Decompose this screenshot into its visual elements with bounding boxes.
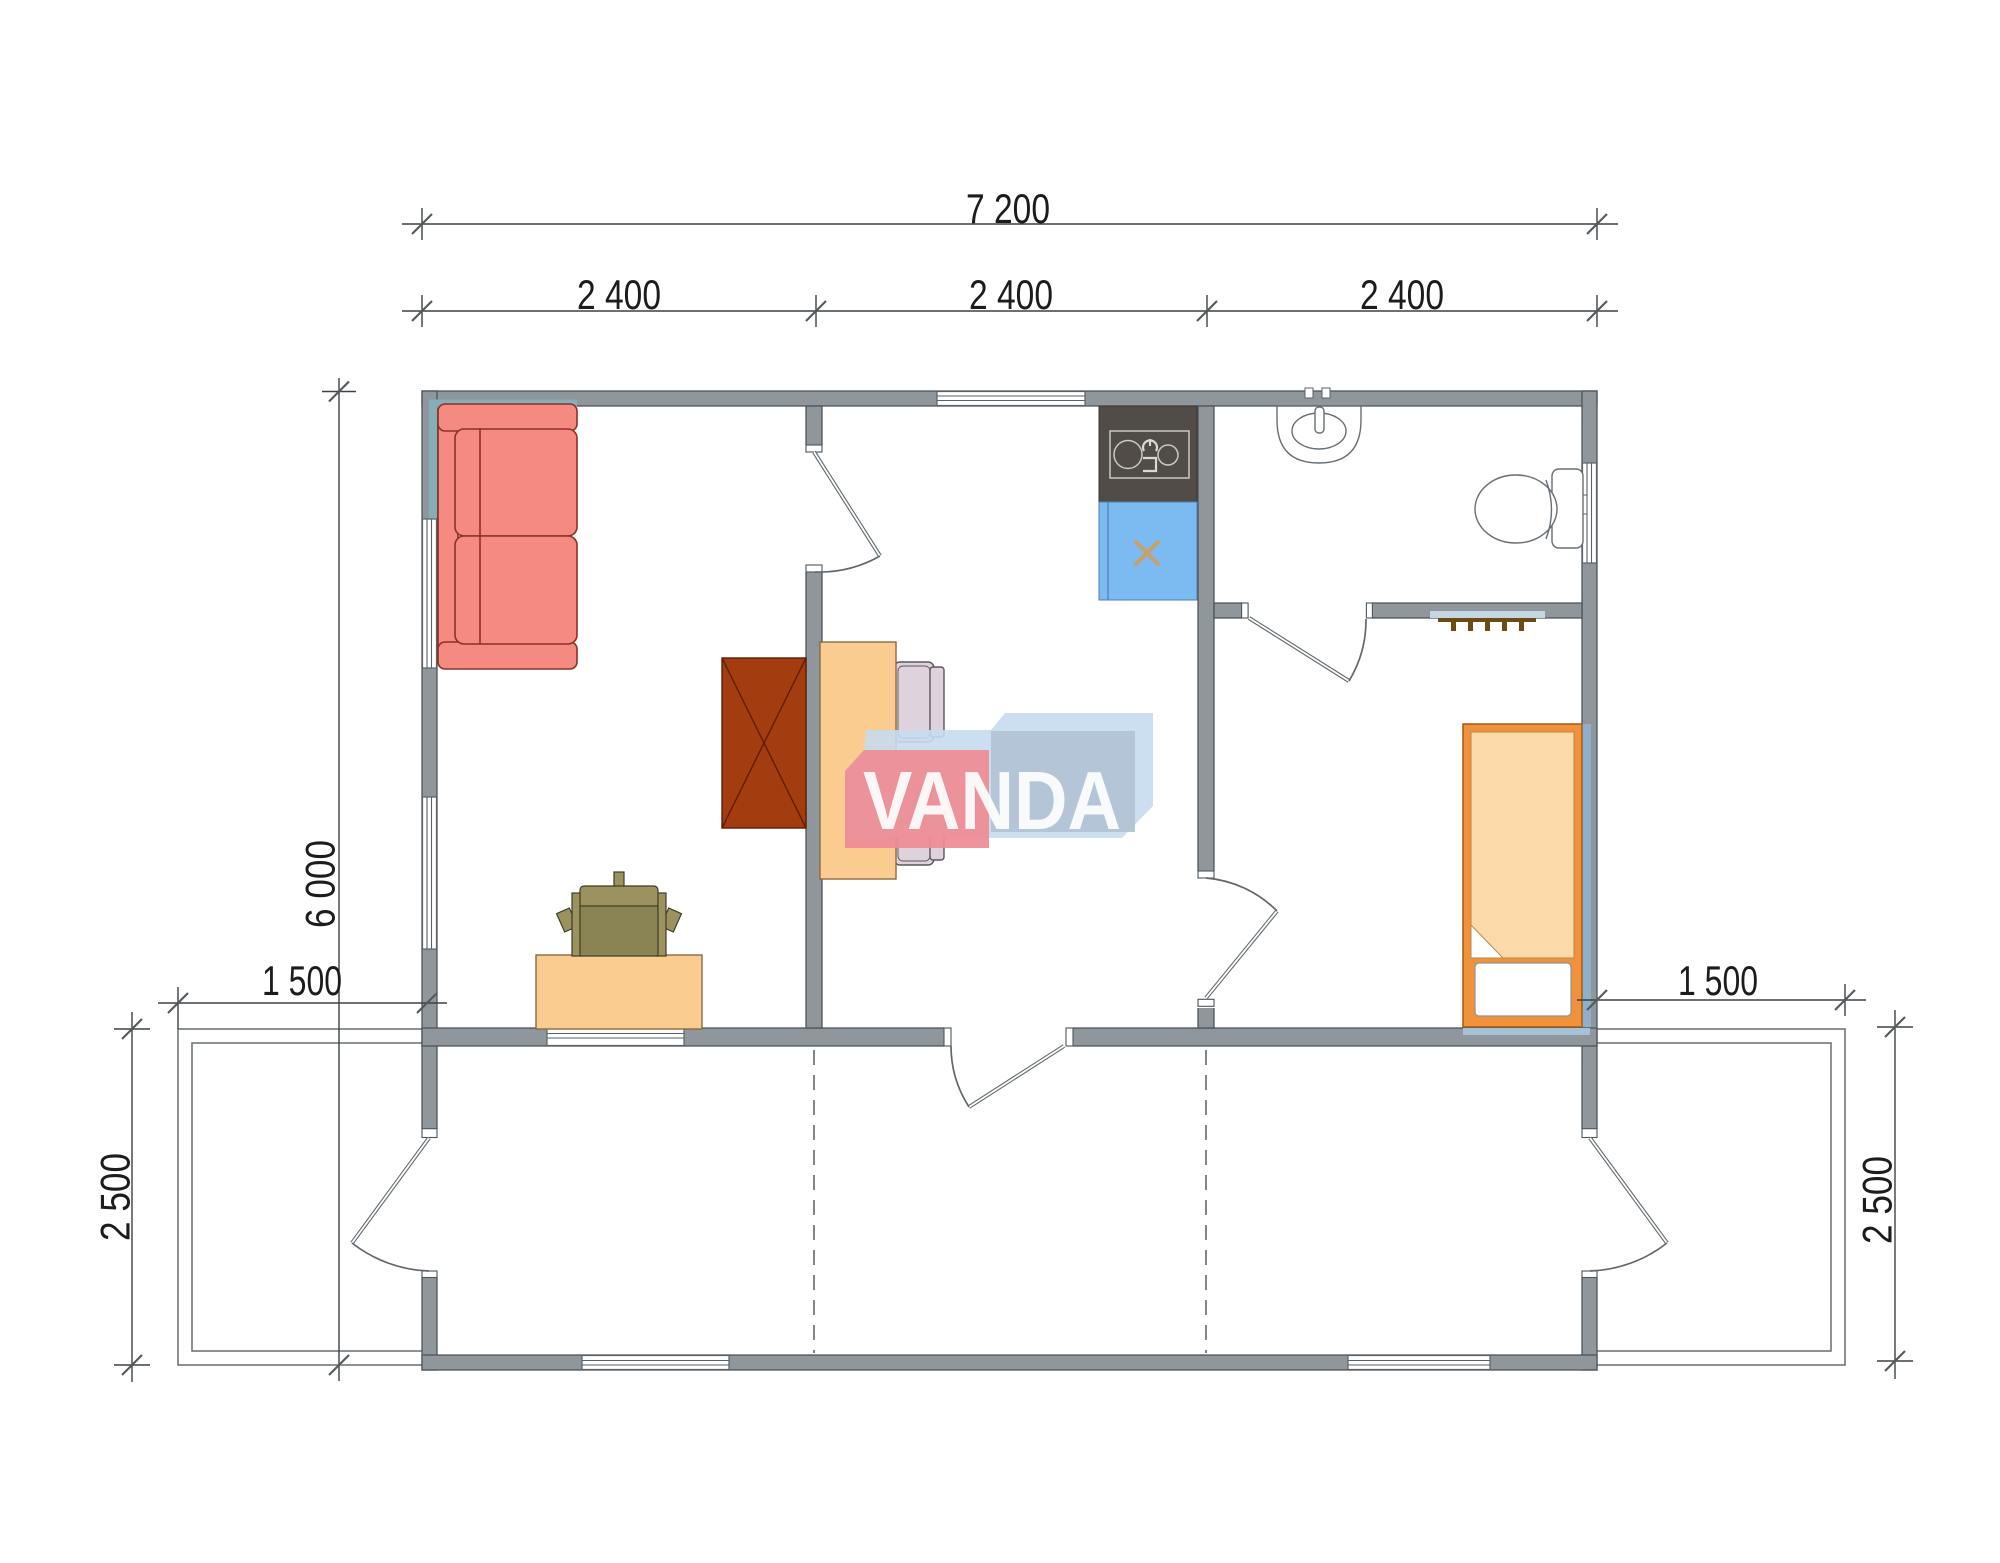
- svg-text:1 500: 1 500: [262, 957, 342, 1004]
- svg-text:2 500: 2 500: [92, 1153, 139, 1241]
- svg-text:2 400: 2 400: [969, 271, 1053, 318]
- svg-text:6 000: 6 000: [297, 840, 344, 928]
- svg-text:VANDA: VANDA: [863, 754, 1121, 847]
- svg-text:1 500: 1 500: [1678, 957, 1758, 1004]
- svg-text:7 200: 7 200: [966, 185, 1050, 232]
- svg-text:2 400: 2 400: [577, 271, 661, 318]
- svg-text:2 500: 2 500: [1854, 1156, 1901, 1244]
- svg-text:2 400: 2 400: [1360, 271, 1444, 318]
